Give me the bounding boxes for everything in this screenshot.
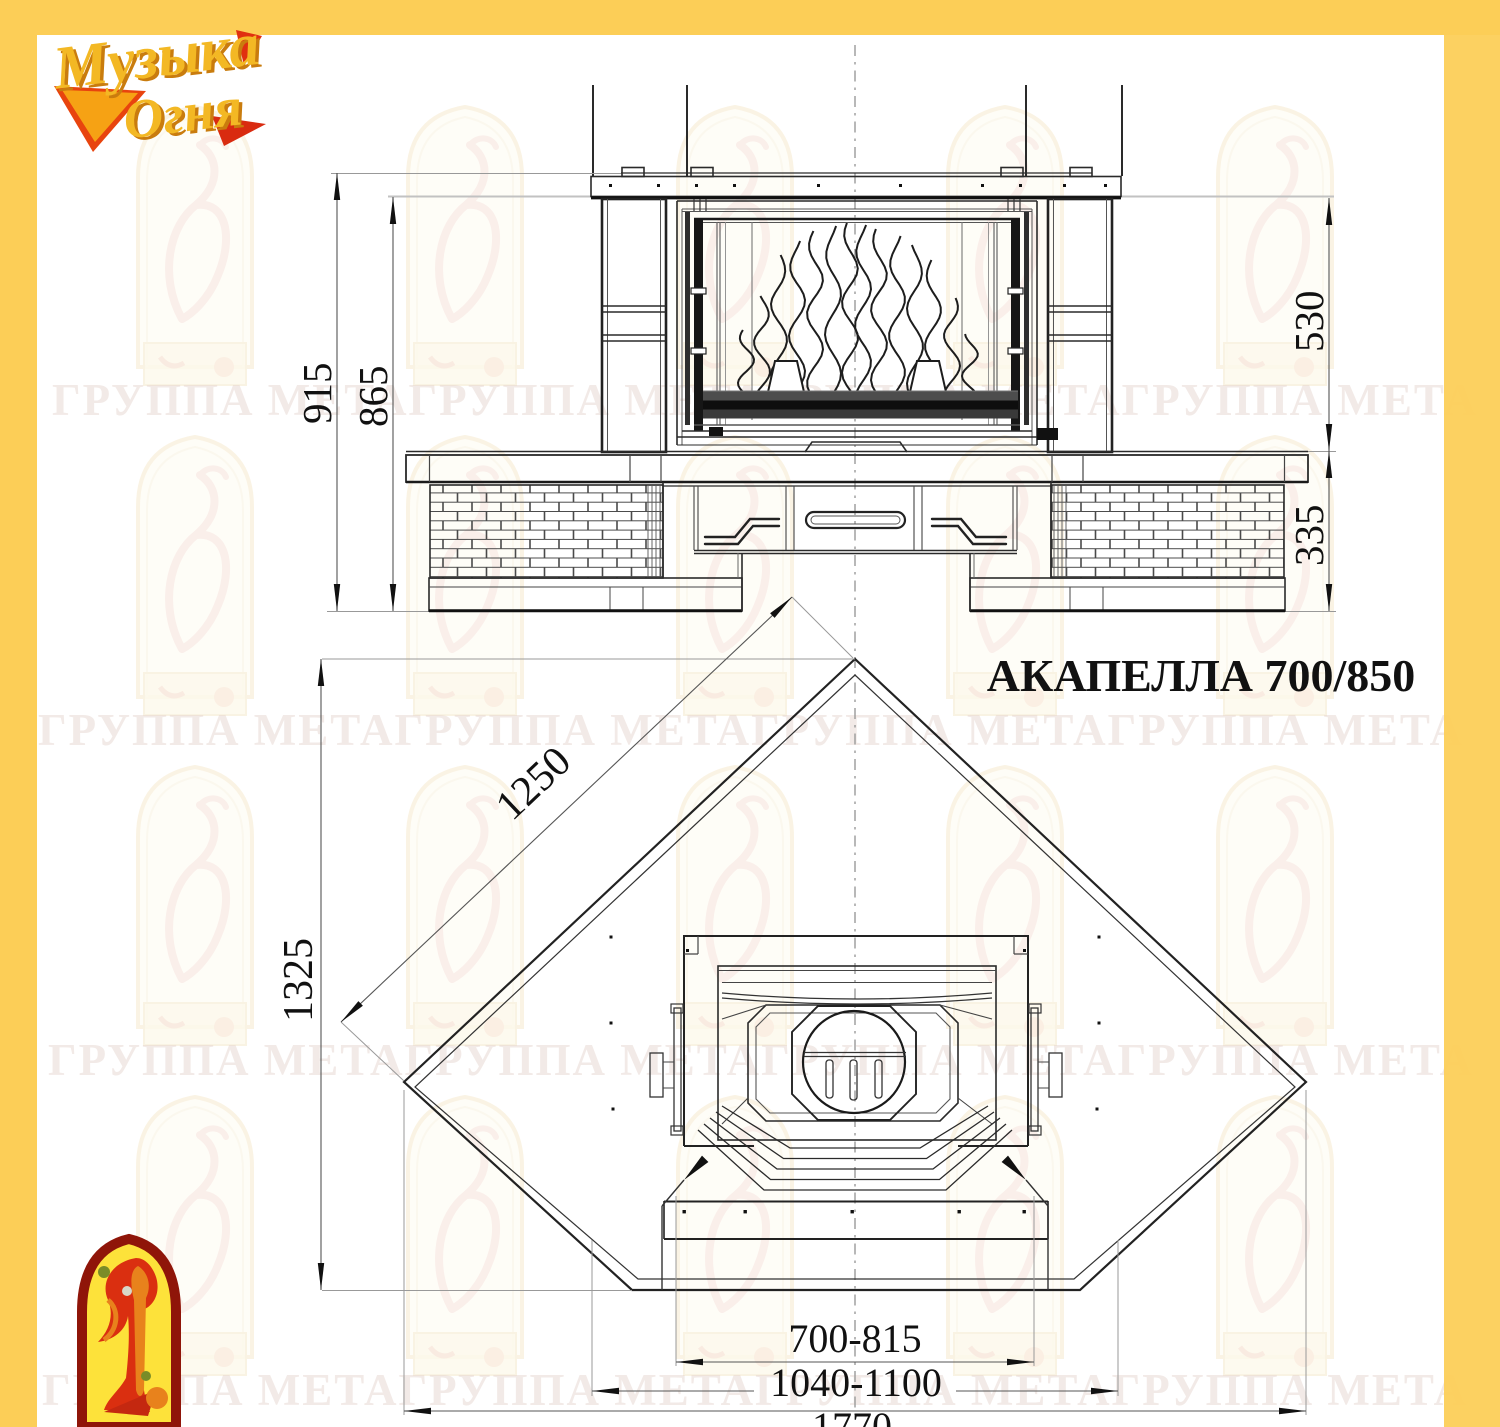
svg-text:1325: 1325 — [276, 938, 322, 1022]
svg-text:АКАПЕЛЛА 700/850: АКАПЕЛЛА 700/850 — [987, 650, 1416, 701]
svg-text:ГРУППА МЕТАГРУППА МЕТАГРУППА М: ГРУППА МЕТАГРУППА МЕТАГРУППА МЕТАГРУППА … — [48, 1035, 1474, 1085]
svg-text:1770: 1770 — [812, 1404, 892, 1427]
svg-text:1040-1100: 1040-1100 — [770, 1360, 942, 1405]
svg-text:ГРУППА МЕТАГРУППА МЕТАГРУППА М: ГРУППА МЕТАГРУППА МЕТАГРУППА МЕТАГРУППА … — [42, 1365, 1468, 1415]
svg-text:ГРУППА МЕТАГРУППА МЕТАГРУППА М: ГРУППА МЕТАГРУППА МЕТАГРУППА МЕТАГРУППА … — [38, 705, 1464, 755]
svg-text:700-815: 700-815 — [788, 1316, 921, 1361]
svg-text:335: 335 — [1286, 505, 1332, 567]
svg-text:915: 915 — [294, 363, 340, 425]
svg-text:530: 530 — [1286, 291, 1332, 353]
svg-text:865: 865 — [350, 366, 396, 428]
